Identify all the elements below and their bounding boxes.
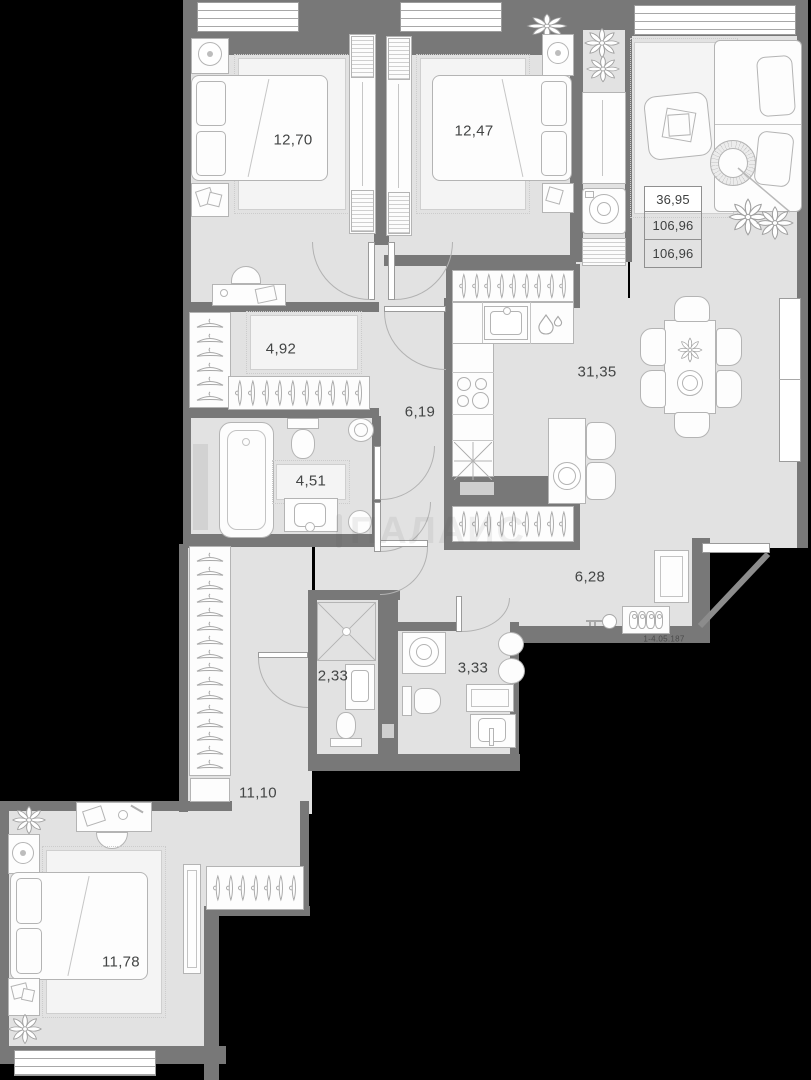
kitchen-table: [548, 418, 586, 504]
toilet-tank: [330, 738, 362, 747]
summary-row-room-area: 36,95: [644, 186, 702, 212]
hanger-icon: [224, 871, 236, 905]
washer-drum-inner: [416, 644, 432, 660]
hanger-icon: [233, 378, 245, 408]
flower-icon: [676, 336, 704, 364]
area-label: 4,92: [266, 341, 296, 358]
hanger-icon: [557, 272, 569, 300]
summary-value: 106,96: [653, 246, 694, 261]
faucet-icon: [503, 307, 511, 315]
hanger-icon: [193, 634, 227, 647]
plate-inner: [558, 467, 576, 485]
hanger-icon: [193, 375, 227, 388]
shoe-box-icon: [622, 606, 670, 634]
shower-drain: [342, 627, 351, 636]
hanger-icon: [193, 675, 227, 688]
hanger-icon: [193, 606, 227, 619]
floor: [228, 800, 306, 812]
hanger-rail: [228, 376, 370, 410]
hanger-icon: [193, 744, 227, 757]
hanger-icon: [532, 509, 544, 539]
lamp-dot: [207, 51, 213, 57]
water-drop-icon: [534, 308, 566, 338]
hanger-icon: [193, 390, 227, 403]
counter-divider: [482, 302, 483, 344]
counter-divider: [530, 302, 531, 344]
hanger-icon: [545, 509, 557, 539]
hanger-icon: [260, 378, 272, 408]
area-label: 3,33: [458, 660, 488, 677]
shelves-icon: [351, 36, 374, 78]
cabinet-handle: [602, 100, 603, 176]
area-label: 2,33: [318, 668, 348, 685]
plant-icon: [754, 204, 796, 242]
tall-cabinet: [582, 92, 626, 184]
sofa-cushion: [756, 55, 796, 117]
hanger-icon: [249, 871, 261, 905]
chair: [716, 370, 742, 408]
counter-divider: [452, 440, 494, 441]
hanger-rail: [452, 270, 574, 302]
hanger-icon: [193, 717, 227, 730]
shelves-icon: [388, 38, 410, 80]
hanger-icon: [557, 509, 569, 539]
shoe-cabinet: [190, 778, 230, 802]
pillow: [196, 131, 226, 176]
hanger-icon: [273, 378, 285, 408]
hanger-icon: [193, 648, 227, 661]
hanger-icon: [286, 378, 298, 408]
hanger-icon: [193, 332, 227, 345]
hanger-icon: [507, 272, 519, 300]
area-label: 12,47: [454, 123, 493, 140]
summary-row-total-area: 106,96: [644, 211, 702, 240]
window: [14, 1050, 156, 1076]
chair: [674, 412, 710, 438]
balcony-window: [779, 298, 801, 462]
chair: [674, 296, 710, 322]
toilet-bowl: [414, 688, 441, 714]
floor-plan: 12,70 12,47 31,35 36,95 106,96 106,96: [0, 0, 811, 1080]
burner: [472, 392, 489, 409]
plant-icon: [6, 1012, 44, 1046]
area-label: 12,70: [273, 132, 312, 149]
hanger-rail: [206, 866, 304, 910]
toilet-bowl: [291, 429, 315, 459]
wall: [179, 544, 188, 812]
key-bow: [602, 614, 617, 629]
wardrobe-rail-line: [362, 82, 363, 186]
burner: [457, 377, 471, 391]
summary-row-total-area: 106,96: [644, 239, 702, 268]
hanger-icon: [211, 871, 223, 905]
shelves-icon: [351, 190, 374, 232]
washer-panel: [585, 191, 594, 198]
bench-inner: [471, 689, 509, 707]
hanger-icon: [193, 730, 227, 743]
hanger-icon: [520, 272, 532, 300]
plate-inner: [682, 375, 698, 391]
wall: [308, 590, 317, 760]
cup-icon: [118, 810, 128, 820]
pillow: [16, 878, 42, 924]
hanger-icon: [193, 346, 227, 359]
entrance-door-swing: [694, 550, 774, 632]
hanger-icon: [287, 871, 299, 905]
faucet-icon: [305, 522, 315, 532]
burner: [475, 378, 487, 390]
hanger-icon: [326, 378, 338, 408]
laundry-basket-icon: [498, 632, 524, 656]
watermark-logo-icon: [336, 514, 342, 548]
pillow: [541, 81, 567, 126]
hanger-icon: [193, 551, 227, 564]
hanger-icon: [193, 565, 227, 578]
hanger-icon: [193, 620, 227, 633]
faucet-icon: [489, 728, 494, 746]
counter-divider: [452, 372, 494, 373]
hanger-icon: [236, 871, 248, 905]
unit-number-label: 1-4.05.187: [643, 635, 684, 644]
wall: [183, 0, 191, 548]
hanger-icon: [482, 272, 494, 300]
hanger-icon: [193, 579, 227, 592]
hanger-icon: [193, 661, 227, 674]
wardrobe-rail-line: [398, 84, 399, 188]
chair: [640, 370, 666, 408]
plant-icon: [10, 804, 48, 836]
pillow: [541, 131, 567, 176]
photo-frame-icon: [21, 988, 35, 1002]
hanger-icon: [262, 871, 274, 905]
pillow: [16, 928, 42, 974]
toilet: [287, 418, 319, 429]
shoe-icon: [629, 611, 638, 629]
hanger-icon: [246, 378, 258, 408]
key-icon: [586, 613, 622, 631]
drain-icon: [242, 438, 250, 446]
toilet-bowl: [336, 712, 356, 739]
watermark: ПАЛАИС: [336, 504, 526, 558]
wall: [204, 906, 219, 1080]
towel-rail: [193, 444, 208, 530]
dining-table: [664, 320, 716, 414]
chair: [586, 422, 616, 460]
area-label: 6,28: [575, 569, 605, 586]
chair: [586, 462, 616, 500]
chair: [716, 328, 742, 366]
wall: [308, 754, 520, 771]
area-label: 31,35: [577, 364, 616, 381]
sink-basin: [351, 670, 369, 702]
hanger-icon: [300, 378, 312, 408]
desk-item: [220, 289, 228, 297]
sofa-seam: [715, 124, 801, 125]
wall: [625, 30, 632, 262]
window-divider: [779, 379, 801, 380]
area-label: 4,51: [296, 473, 326, 490]
shaft: [382, 724, 394, 738]
hanger-icon: [193, 703, 227, 716]
hanger-icon: [193, 361, 227, 374]
counter-divider: [452, 414, 494, 415]
watermark-text: ПАЛАИС: [350, 510, 526, 553]
plant-icon: [584, 54, 622, 84]
shoe-icon: [638, 611, 647, 629]
hanger-icon: [545, 272, 557, 300]
hanger-icon: [532, 272, 544, 300]
hanger-icon: [193, 689, 227, 702]
key-tooth: [594, 622, 596, 626]
key-tooth: [589, 622, 591, 626]
window: [634, 5, 796, 35]
hanger-icon: [193, 758, 227, 771]
window: [197, 2, 299, 32]
hanger-icon: [193, 317, 227, 330]
stove-icon: [454, 374, 492, 412]
mirror-inner: [187, 870, 197, 968]
door-leaf: [388, 242, 395, 300]
hanger-column: [189, 546, 231, 776]
chair: [640, 328, 666, 366]
hanger-icon: [495, 272, 507, 300]
shoe-icon: [646, 611, 655, 629]
hanger-icon: [274, 871, 286, 905]
dryer-icon: [582, 238, 626, 266]
washer-drum-inner: [597, 202, 611, 216]
hanger-icon: [340, 378, 352, 408]
door-leaf: [374, 446, 381, 500]
table-tray-inner: [667, 113, 690, 136]
shaft: [460, 482, 494, 495]
wall: [396, 622, 460, 631]
mirror-inner: [660, 556, 683, 597]
burner: [457, 395, 469, 407]
area-label: 11,10: [239, 785, 277, 802]
lamp-dot: [20, 850, 26, 856]
toilet-tank: [402, 686, 412, 716]
water-heater-inner: [354, 423, 368, 437]
summary-value: 106,96: [653, 218, 694, 233]
vent-fan-icon: [454, 442, 492, 480]
area-label: 11,78: [102, 954, 140, 971]
area-label: 6,19: [405, 404, 435, 421]
hanger-icon: [193, 592, 227, 605]
shoe-icon: [655, 611, 664, 629]
hanger-icon: [353, 378, 365, 408]
window: [400, 2, 502, 32]
hanger-icon: [313, 378, 325, 408]
hanger-icon: [457, 272, 469, 300]
hanger-icon: [470, 272, 482, 300]
hanger-column: [189, 312, 231, 408]
laundry-basket-icon: [498, 658, 525, 684]
shelves-icon: [388, 192, 410, 234]
pillow: [196, 81, 226, 126]
summary-value: 36,95: [656, 192, 690, 207]
lamp-dot: [555, 50, 561, 56]
